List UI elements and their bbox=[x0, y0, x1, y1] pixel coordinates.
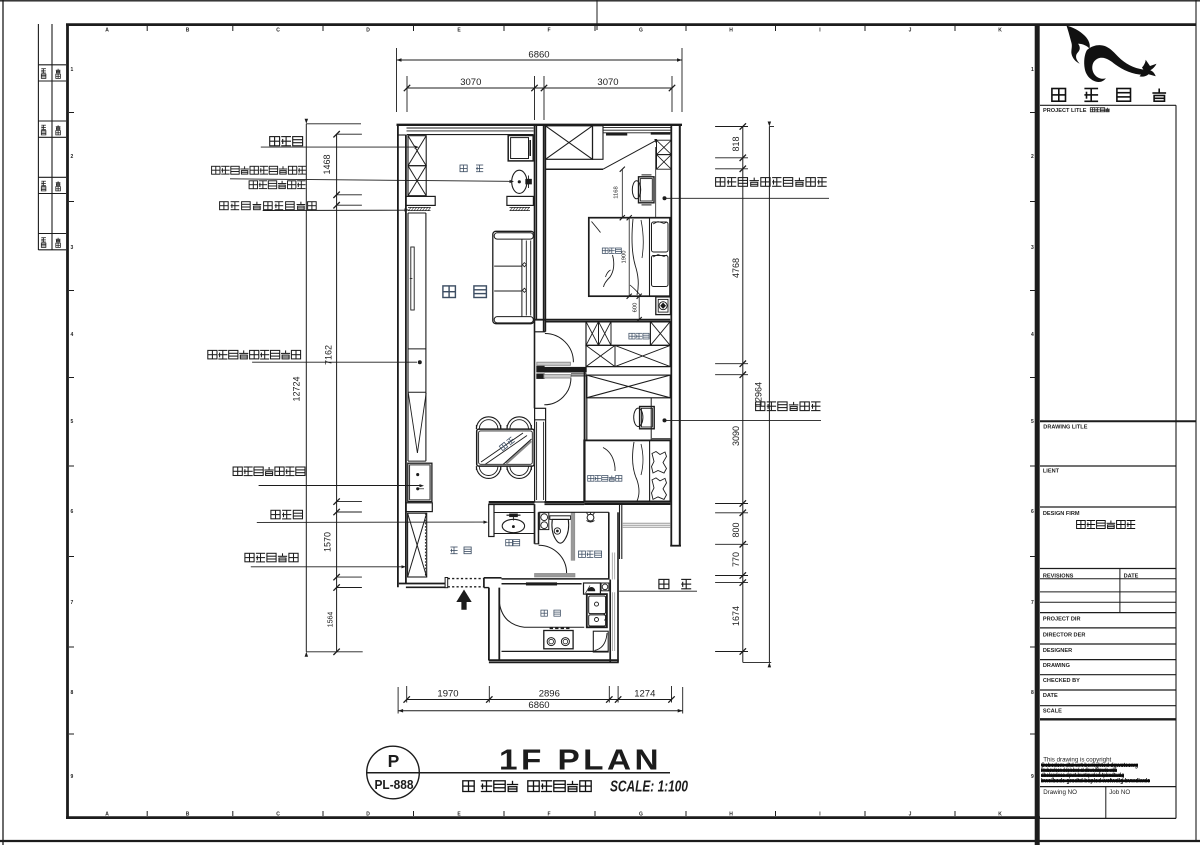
svg-text:12724: 12724 bbox=[292, 376, 302, 401]
svg-text:A: A bbox=[105, 812, 109, 818]
svg-text:3: 3 bbox=[1031, 245, 1034, 251]
svg-text:818: 818 bbox=[731, 136, 741, 151]
svg-text:DESIGN FIRM: DESIGN FIRM bbox=[1043, 511, 1080, 517]
svg-text:3090: 3090 bbox=[731, 426, 741, 446]
svg-text:DRAWING LITLE: DRAWING LITLE bbox=[1043, 425, 1087, 431]
svg-text:800: 800 bbox=[731, 522, 741, 537]
svg-text:4768: 4768 bbox=[731, 258, 741, 278]
svg-text:3070: 3070 bbox=[597, 77, 618, 88]
svg-text:F: F bbox=[547, 812, 550, 818]
svg-text:G: G bbox=[639, 812, 643, 818]
svg-text:K: K bbox=[998, 812, 1002, 818]
svg-text:7: 7 bbox=[1031, 600, 1034, 606]
svg-text:H: H bbox=[729, 812, 733, 818]
svg-text:SCALE: 1:100: SCALE: 1:100 bbox=[610, 779, 688, 796]
svg-text:12964: 12964 bbox=[754, 382, 764, 407]
svg-text:C: C bbox=[276, 28, 280, 34]
svg-text:1: 1 bbox=[1031, 67, 1034, 73]
svg-text:K: K bbox=[998, 28, 1002, 34]
svg-text:4: 4 bbox=[71, 332, 74, 338]
svg-text:3: 3 bbox=[71, 245, 74, 251]
svg-text:1970: 1970 bbox=[437, 689, 458, 700]
svg-text:D: D bbox=[366, 28, 370, 34]
svg-text:600: 600 bbox=[633, 303, 639, 313]
svg-text:DRAWING: DRAWING bbox=[1043, 663, 1070, 669]
svg-text:DATE: DATE bbox=[1043, 693, 1058, 699]
svg-text:2896: 2896 bbox=[539, 689, 560, 700]
svg-text:LIENT: LIENT bbox=[1043, 469, 1060, 475]
svg-text:PL-888: PL-888 bbox=[375, 778, 414, 792]
svg-text:9: 9 bbox=[71, 774, 74, 780]
svg-text:C: C bbox=[276, 812, 280, 818]
svg-text:Drawing NO: Drawing NO bbox=[1043, 789, 1077, 796]
svg-text:1900: 1900 bbox=[622, 251, 628, 264]
svg-text:1274: 1274 bbox=[634, 689, 655, 700]
svg-text:8: 8 bbox=[71, 690, 74, 696]
svg-text:PROJECT LITLE: PROJECT LITLE bbox=[1043, 108, 1087, 114]
svg-text:B: B bbox=[186, 28, 190, 34]
svg-text:9: 9 bbox=[1031, 774, 1034, 780]
svg-text:1570: 1570 bbox=[323, 532, 333, 552]
svg-text:3070: 3070 bbox=[460, 77, 481, 88]
svg-text:1: 1 bbox=[71, 67, 74, 73]
svg-text:PROJECT DIR: PROJECT DIR bbox=[1043, 617, 1081, 623]
svg-text:G: G bbox=[639, 28, 643, 34]
svg-text:CHECKED BY: CHECKED BY bbox=[1043, 678, 1080, 684]
svg-text:1F PLAN: 1F PLAN bbox=[499, 745, 662, 777]
svg-text:1468: 1468 bbox=[322, 154, 332, 174]
svg-text:2: 2 bbox=[71, 154, 74, 160]
svg-text:5: 5 bbox=[71, 419, 74, 425]
svg-text:7: 7 bbox=[71, 600, 74, 606]
svg-text:P: P bbox=[388, 751, 400, 771]
svg-text:2: 2 bbox=[1031, 154, 1034, 160]
svg-text:8: 8 bbox=[1031, 690, 1034, 696]
svg-text:F: F bbox=[547, 28, 550, 34]
svg-text:D: D bbox=[366, 812, 370, 818]
svg-text:6860: 6860 bbox=[528, 700, 549, 711]
svg-text:A: A bbox=[105, 28, 109, 34]
svg-text:B: B bbox=[186, 812, 190, 818]
svg-text:4: 4 bbox=[1031, 332, 1034, 338]
svg-text:6: 6 bbox=[71, 509, 74, 515]
svg-text:H: H bbox=[729, 28, 733, 34]
svg-text:DESIGNER: DESIGNER bbox=[1043, 648, 1072, 654]
svg-text:6: 6 bbox=[1031, 509, 1034, 515]
svg-text:1674: 1674 bbox=[731, 606, 741, 626]
svg-text:1564: 1564 bbox=[328, 612, 335, 628]
svg-text:6860: 6860 bbox=[528, 50, 549, 61]
svg-text:1168: 1168 bbox=[614, 186, 620, 198]
svg-text:SCALE: SCALE bbox=[1043, 709, 1062, 715]
svg-text:J: J bbox=[909, 812, 912, 818]
svg-text:J: J bbox=[909, 28, 912, 34]
svg-text:770: 770 bbox=[731, 552, 741, 567]
svg-text:DIRECTOR DER: DIRECTOR DER bbox=[1043, 633, 1085, 639]
svg-text:Job NO: Job NO bbox=[1109, 789, 1130, 796]
svg-text:5: 5 bbox=[1031, 419, 1034, 425]
